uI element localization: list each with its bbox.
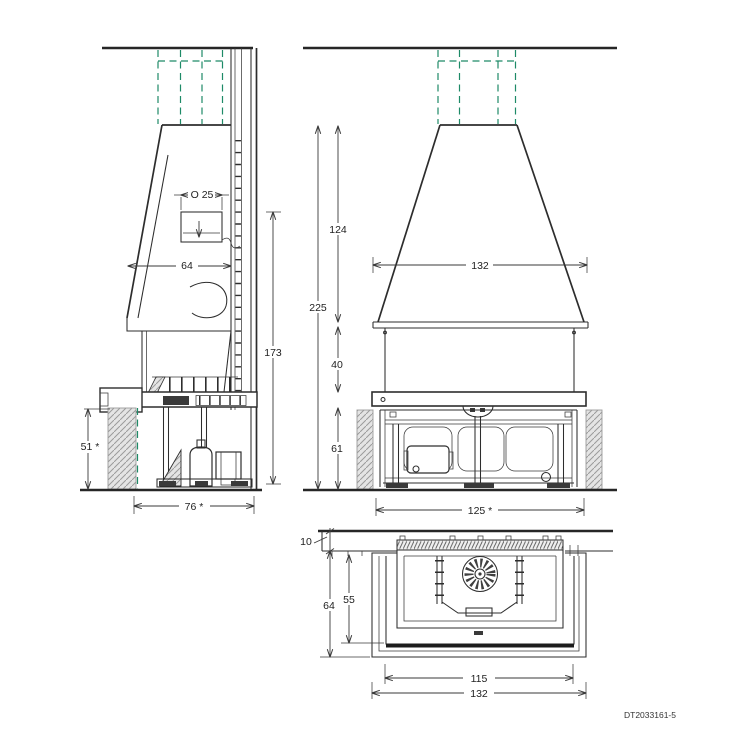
dim-base-height-61: 61 xyxy=(327,408,347,489)
firebox-profile xyxy=(142,331,238,395)
dim-label-hood-height: 124 xyxy=(329,224,347,236)
fireplace-technical-drawing: O 25 64 173 51 * 76 * xyxy=(0,0,753,753)
control-box xyxy=(216,452,241,479)
gas-valve-cylinder xyxy=(190,447,212,486)
dim-label-wall-offset: 10 xyxy=(300,536,312,548)
dim-label-depth-outer: 64 xyxy=(323,600,335,612)
dim-label-width-inner: 115 xyxy=(471,673,488,685)
dim-label-band-height: 40 xyxy=(331,359,343,371)
dim-label-flue-diameter: O 25 xyxy=(191,189,214,201)
smoke-deflector-curve xyxy=(190,282,227,317)
dim-hood-depth: 64 xyxy=(128,260,231,272)
dim-label-base-width: 125 * xyxy=(468,505,493,517)
dim-height-173: 173 xyxy=(261,212,285,484)
wall-section-hatch-left xyxy=(357,410,373,489)
wall-section-hatch-right xyxy=(586,410,602,489)
dim-hood-width-132: 132 xyxy=(373,257,587,273)
flue-fan-plan xyxy=(463,557,498,592)
dim-label-depth-inner: 55 xyxy=(343,594,355,606)
wall-back-panel xyxy=(231,48,257,490)
dim-hood-height-124: 124 xyxy=(326,126,351,322)
dim-flue-diameter: O 25 xyxy=(174,188,229,210)
fireplace-body-front xyxy=(384,328,576,392)
dim-label-height-173: 173 xyxy=(264,347,282,359)
dim-label-hood-depth: 64 xyxy=(181,260,193,272)
drawing-canvas: O 25 64 173 51 * 76 * xyxy=(0,0,753,753)
hood-profile xyxy=(127,125,231,331)
dim-base-depth-76: 76 * xyxy=(134,496,254,514)
dim-depth-inner-55: 55 xyxy=(338,555,384,643)
flue-projection-dashed xyxy=(158,50,223,124)
dim-label-base-depth: 76 * xyxy=(185,501,204,513)
dim-label-width-outer: 132 xyxy=(470,688,488,700)
base-frame-front xyxy=(380,410,577,488)
base-understructure-side xyxy=(157,407,252,487)
top-view: 10 64 55 115 132 xyxy=(300,528,613,700)
dim-label-total-height: 225 xyxy=(309,302,327,314)
mantel-shelf xyxy=(372,392,586,417)
dim-width-inner-115: 115 xyxy=(385,664,573,685)
drawing-number: DT2033161-5 xyxy=(624,710,676,720)
dim-wall-offset-10: 10 xyxy=(300,528,334,554)
dim-label-hood-width: 132 xyxy=(471,260,489,272)
brand-mark xyxy=(474,631,483,635)
blower-housing xyxy=(463,406,493,417)
side-view: O 25 64 173 51 * 76 * xyxy=(76,48,285,514)
flue-projection-dashed xyxy=(438,50,516,124)
front-view: 225 124 40 61 132 125 xyxy=(303,48,617,517)
dim-band-height-40: 40 xyxy=(328,327,347,392)
dim-label-wall-height: 51 * xyxy=(81,441,100,453)
hood-front xyxy=(373,125,588,328)
pulley-wheel xyxy=(542,473,551,482)
dim-base-width-125: 125 * xyxy=(376,498,584,517)
wall-section-hatch xyxy=(108,408,136,489)
dim-label-base-height: 61 xyxy=(331,443,343,455)
dim-total-height-225: 225 xyxy=(305,126,331,489)
dim-wall-height-51: 51 * xyxy=(76,409,110,489)
front-band-hatch xyxy=(397,536,563,550)
firebox-plan xyxy=(397,550,563,635)
